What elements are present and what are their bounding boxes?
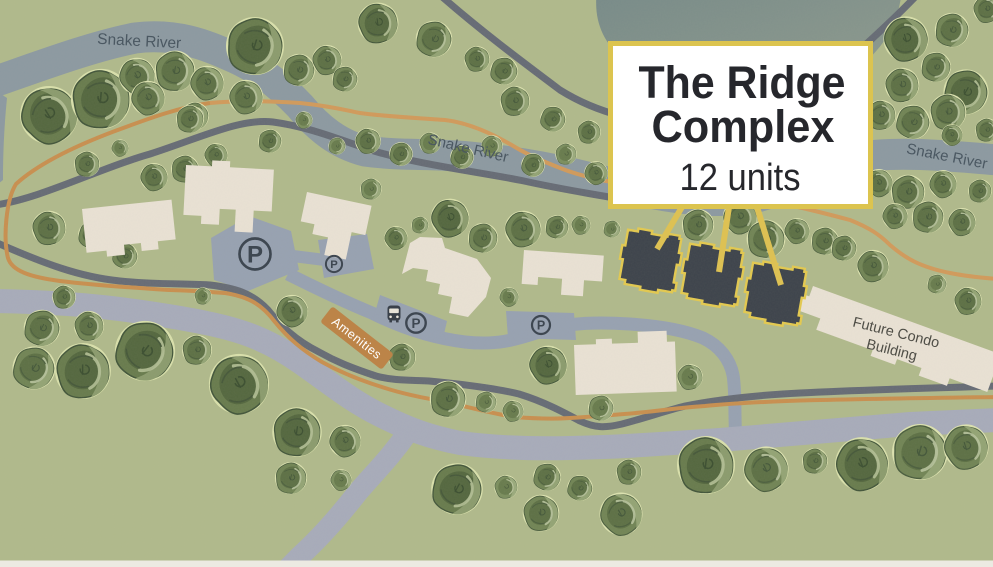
- svg-text:P: P: [247, 241, 263, 268]
- svg-text:Complex: Complex: [652, 101, 835, 152]
- svg-text:12 units: 12 units: [680, 157, 801, 199]
